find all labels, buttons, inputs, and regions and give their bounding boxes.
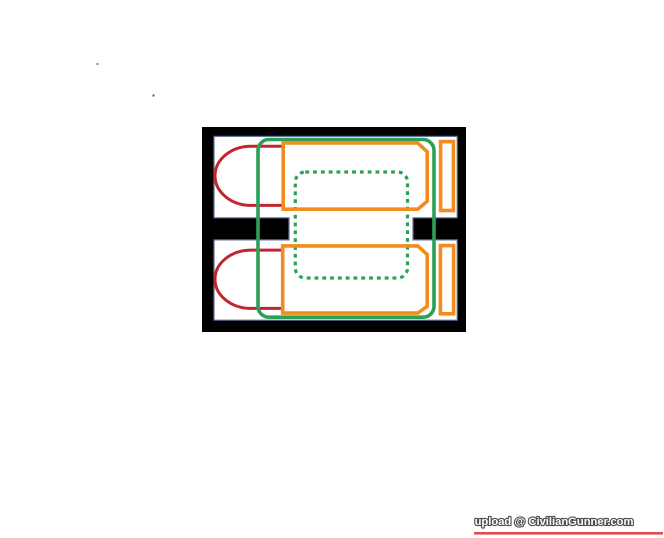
svg-text:upload @ CivilianGunner.com: upload @ CivilianGunner.com xyxy=(475,516,634,528)
